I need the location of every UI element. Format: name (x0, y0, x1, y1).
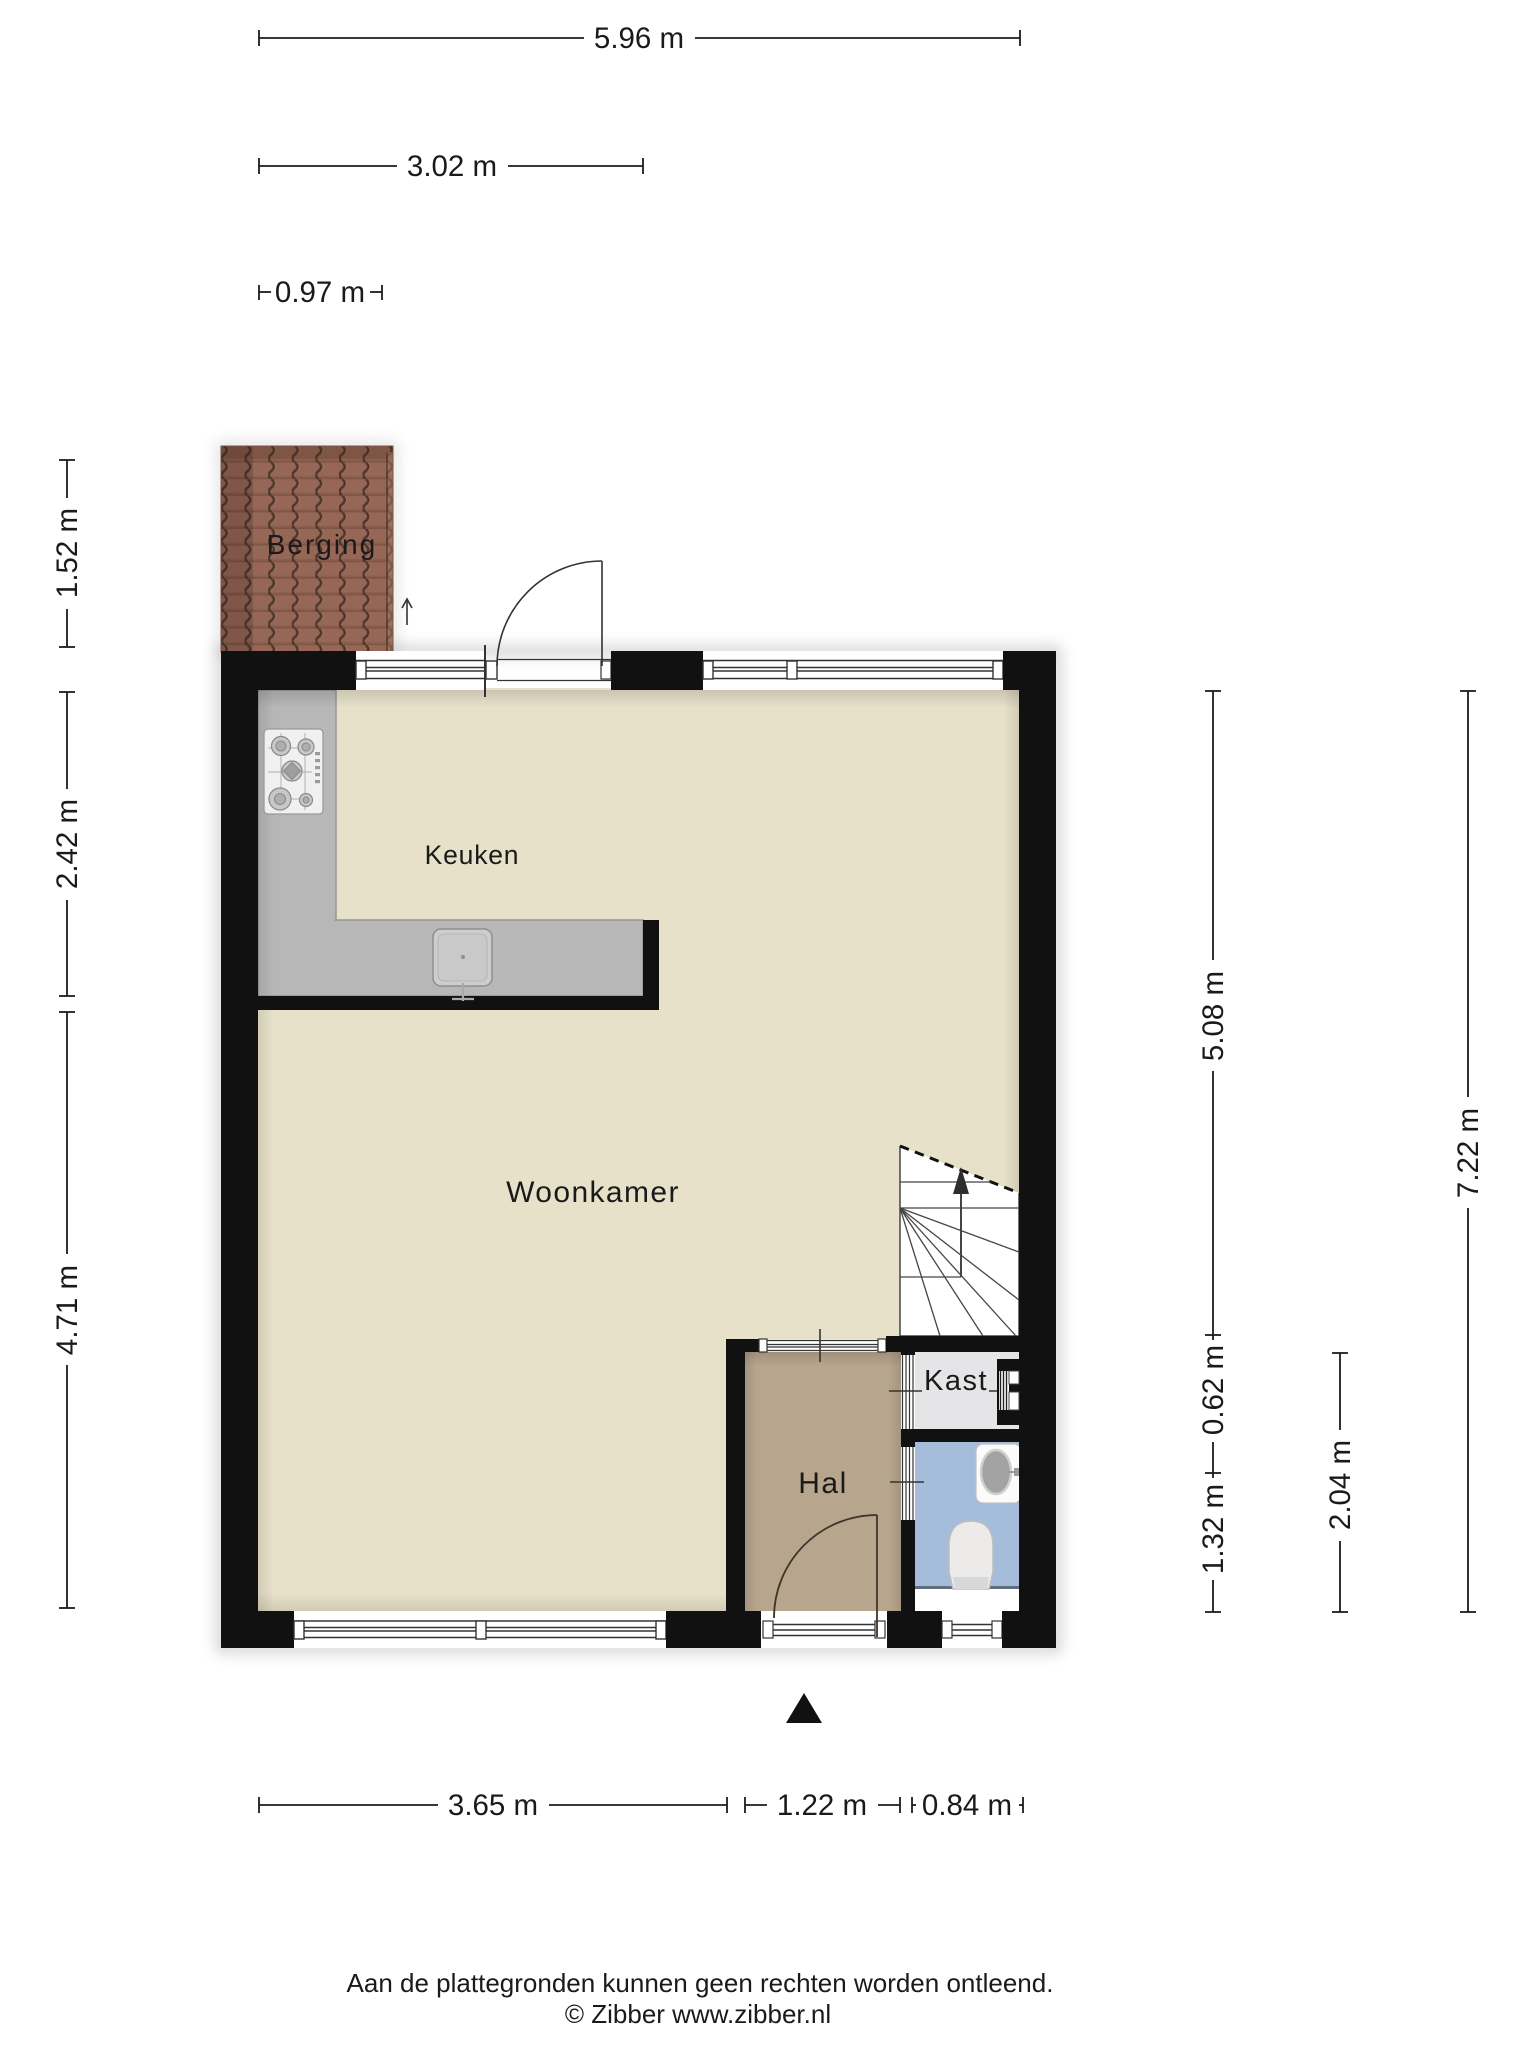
svg-text:Keuken: Keuken (425, 840, 520, 870)
svg-text:0.62 m: 0.62 m (1197, 1345, 1230, 1435)
svg-text:0.97 m: 0.97 m (275, 276, 365, 309)
svg-text:1.22 m: 1.22 m (777, 1789, 867, 1822)
svg-text:1.32 m: 1.32 m (1197, 1484, 1230, 1574)
svg-text:7.22 m: 7.22 m (1452, 1108, 1485, 1198)
svg-text:2.04 m: 2.04 m (1324, 1440, 1357, 1530)
svg-text:Woonkamer: Woonkamer (506, 1176, 680, 1209)
svg-text:Berging: Berging (267, 529, 378, 560)
svg-text:3.02 m: 3.02 m (407, 150, 497, 183)
svg-text:2.42 m: 2.42 m (51, 799, 84, 889)
svg-text:1.52 m: 1.52 m (51, 508, 84, 598)
svg-text:0.84 m: 0.84 m (922, 1789, 1012, 1822)
svg-text:5.96 m: 5.96 m (594, 22, 684, 55)
svg-text:Hal: Hal (798, 1467, 848, 1500)
svg-text:© Zibber www.zibber.nl: © Zibber www.zibber.nl (565, 1999, 831, 2029)
svg-text:Aan de plattegronden kunnen ge: Aan de plattegronden kunnen geen rechten… (347, 1968, 1054, 1998)
svg-text:5.08 m: 5.08 m (1197, 971, 1230, 1061)
svg-text:3.65 m: 3.65 m (448, 1789, 538, 1822)
svg-text:Kast: Kast (924, 1365, 988, 1397)
svg-text:4.71 m: 4.71 m (51, 1265, 84, 1355)
